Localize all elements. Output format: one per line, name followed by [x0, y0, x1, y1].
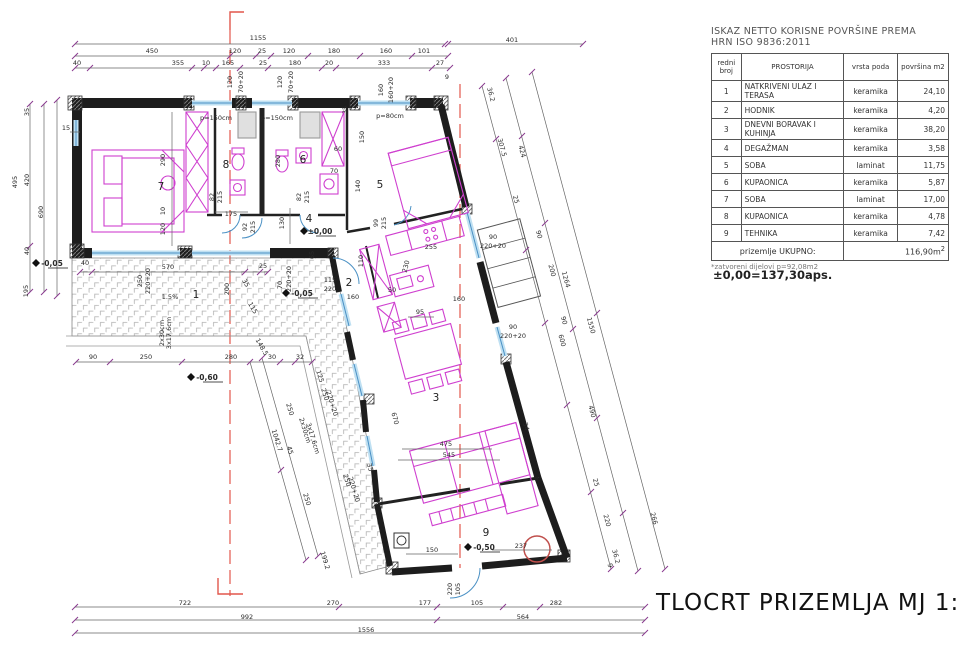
dim-label: 90: [534, 229, 544, 239]
dim-label: 670: [389, 411, 400, 425]
dim-label: 10: [159, 207, 167, 215]
cell-floor: keramika: [844, 102, 898, 119]
room-number: 9: [483, 527, 490, 539]
cell-room: DEGAŽMAN: [741, 140, 844, 157]
cell-number: 4: [712, 140, 742, 157]
dim-label: 600: [556, 333, 567, 347]
dim-label: 160: [377, 84, 385, 96]
dim-label: 70: [330, 167, 338, 175]
cell-number: 6: [712, 174, 742, 191]
bath-room6: [276, 112, 344, 194]
dim-label: 70: [276, 281, 284, 289]
cell-area: 5,87: [897, 174, 948, 191]
dim-label: 70+20: [287, 71, 295, 93]
dim-label: 165: [222, 59, 234, 67]
cell-floor: keramika: [844, 81, 898, 102]
dim-label: 3x17,6cm: [165, 317, 173, 349]
cell-area: 3,58: [897, 140, 948, 157]
bath-room8: [230, 112, 256, 195]
dim-label: 199.2: [318, 550, 331, 570]
cell-number: 2: [712, 102, 742, 119]
dim-label: 160: [380, 47, 392, 55]
dim-label: 250: [136, 275, 144, 287]
dim-label: 250: [284, 402, 295, 416]
dim-label: 450: [146, 47, 158, 55]
dim-label: 475: [440, 440, 452, 448]
dim-label: 90: [89, 353, 97, 361]
cell-floor: keramika: [844, 225, 898, 242]
dim-label: 150: [358, 131, 366, 143]
dim-label: 195: [22, 285, 30, 297]
cell-number: 3: [712, 119, 742, 140]
terrace: [66, 258, 390, 578]
cell-area: 11,75: [897, 157, 948, 174]
cell-room: HODNIK: [741, 102, 844, 119]
dim-label: 280: [225, 353, 237, 361]
cell-area: 4,78: [897, 208, 948, 225]
level-marker-icon: [464, 543, 472, 551]
cell-floor: laminat: [844, 191, 898, 208]
dim-label: 40: [23, 247, 31, 255]
dim-label: 120: [283, 47, 295, 55]
cell-area: 7,42: [897, 225, 948, 242]
dim-label: 180: [289, 59, 301, 67]
dim-label: 105: [454, 583, 462, 595]
dim-label: 120: [276, 76, 284, 88]
cell-floor: keramika: [844, 208, 898, 225]
dim-label: 1155: [250, 34, 267, 42]
room-number: 6: [300, 154, 307, 166]
dim-label: 1.5%: [162, 293, 179, 301]
level-marker-icon: [32, 259, 40, 267]
cell-room: SOBA: [741, 191, 844, 208]
dim-label: 90: [489, 233, 497, 241]
total-value: 116,90m2: [844, 242, 949, 261]
dim-label: 333: [378, 59, 390, 67]
cell-floor: laminat: [844, 157, 898, 174]
drawing-title: TLOCRT PRIZEMLJA MJ 1:100: [656, 590, 960, 616]
col-header-room: PROSTORIJA: [741, 54, 844, 81]
dim-label: 255: [425, 243, 437, 251]
dim-label: 120: [226, 76, 234, 88]
axis-bracket-top: [230, 12, 244, 30]
dim-label: 282: [550, 599, 562, 607]
dim-label: 220: [446, 583, 454, 595]
room-number: 4: [306, 213, 313, 225]
dim-label: 420: [23, 174, 31, 186]
dim-label: 10: [202, 59, 210, 67]
table-row: 1NATKRIVENI ULAZ I TERASAkeramika24,10: [712, 81, 949, 102]
dim-label: 690: [37, 206, 45, 218]
cell-room: DNEVNI BORAVAK I KUHINJA: [741, 119, 844, 140]
level-note: ±0,00=137,30aps.: [713, 268, 832, 282]
area-table: redni broj PROSTORIJA vrsta poda površin…: [711, 53, 949, 261]
dim-label: 25: [259, 262, 267, 270]
sofa: [410, 423, 539, 535]
level-marker-icon: [187, 373, 195, 381]
dim-label: 82: [208, 193, 216, 201]
dim-label: 215: [380, 217, 388, 229]
dim-label: 40: [81, 259, 89, 267]
room-number: 2: [346, 277, 353, 289]
dim-label: 25: [258, 47, 266, 55]
table-row: 2HODNIKkeramika4,20: [712, 102, 949, 119]
cell-room: TEHNIKA: [741, 225, 844, 242]
cell-room: KUPAONICA: [741, 174, 844, 191]
dim-label: 40: [73, 59, 81, 67]
cell-area: 24,10: [897, 81, 948, 102]
window-label: p=150cm: [200, 114, 232, 122]
dim-label: 95: [416, 308, 424, 316]
room-number: 5: [377, 179, 384, 191]
cell-area: 4,20: [897, 102, 948, 119]
dim-label: 177: [419, 599, 431, 607]
dim-label: 175: [225, 210, 237, 218]
table-row: 8KUPAONICAkeramika4,78: [712, 208, 949, 225]
dim-label: 270: [327, 599, 339, 607]
dim-label: 120: [229, 47, 241, 55]
dim-label: 722: [179, 599, 191, 607]
dim-label: 160+20: [387, 77, 395, 103]
cell-number: 8: [712, 208, 742, 225]
cell-number: 1: [712, 81, 742, 102]
dim-label: 101: [418, 47, 430, 55]
dim-label: 35: [23, 108, 31, 116]
drawing-sheet: 1155401450120251201801601014035510165251…: [0, 0, 960, 659]
dim-label: 90: [559, 315, 569, 325]
dim-label: 564: [517, 613, 529, 621]
room-number: 8: [223, 159, 230, 171]
dim-label: 355: [172, 59, 184, 67]
dim-label: 200: [223, 283, 231, 295]
dim-label: 545: [443, 451, 455, 459]
dim-label: 160: [347, 293, 359, 301]
cell-room: NATKRIVENI ULAZ I TERASA: [741, 81, 844, 102]
dim-label: 70+20: [237, 71, 245, 93]
level-label: -0,05: [41, 259, 63, 268]
bed-room5: [388, 137, 468, 228]
table-title-line1: ISKAZ NETTO KORISNE POVRŠINE PREMA: [711, 26, 953, 37]
table-row: 4DEGAŽMANkeramika3,58: [712, 140, 949, 157]
cell-floor: keramika: [844, 140, 898, 157]
dim-label: 30: [268, 353, 276, 361]
dim-label: 82: [295, 193, 303, 201]
dim-label: 215: [216, 191, 224, 203]
dim-label: 99: [372, 219, 380, 227]
window-label: p=80cm: [376, 112, 404, 120]
dim-label: 36.2: [485, 86, 496, 102]
dim-label: 570: [162, 263, 174, 271]
dim-label: 27: [436, 59, 444, 67]
dim-label: 490: [586, 404, 597, 418]
dim-label: 220+20: [500, 332, 526, 340]
dim-label: 200: [546, 263, 557, 277]
dim-label: 280: [274, 155, 282, 167]
dim-label: 20: [325, 59, 333, 67]
cell-number: 7: [712, 191, 742, 208]
table-title-line2: HRN ISO 9836:2011: [711, 37, 953, 48]
dim-label: 45: [285, 445, 295, 455]
bed-room7: [92, 150, 184, 232]
level-label: -0,50: [473, 543, 495, 552]
kitchen-island: [390, 265, 434, 297]
total-label: prizemlje UKUPNO:: [712, 242, 844, 261]
dim-label: 50: [388, 286, 396, 294]
dim-label: 25: [259, 59, 267, 67]
dim-label: 15: [62, 124, 70, 132]
dim-label: 140: [354, 180, 362, 192]
area-table-block: ISKAZ NETTO KORISNE POVRŠINE PREMA HRN I…: [711, 26, 953, 271]
dim-label: 220: [601, 513, 612, 527]
walls-left-wing: [72, 98, 443, 258]
col-header-floor: vrsta poda: [844, 54, 898, 81]
dim-label: 60: [334, 145, 342, 153]
room-number: 3: [433, 392, 440, 404]
window-label: p=150cm: [261, 114, 293, 122]
dim-label: 25: [511, 194, 521, 204]
dim-label: 266: [648, 511, 659, 525]
cell-floor: keramika: [844, 119, 898, 140]
table-row: 3DNEVNI BORAVAK I KUHINJAkeramika38,20: [712, 119, 949, 140]
dim-label: 130: [278, 217, 286, 229]
dim-label: 110: [357, 255, 365, 267]
dim-label: 401: [506, 36, 518, 44]
dim-label: 160: [453, 295, 465, 303]
dim-label: 250: [301, 492, 312, 506]
level-label: ±0,00: [308, 227, 333, 236]
cell-number: 9: [712, 225, 742, 242]
cell-area: 38,20: [897, 119, 948, 140]
dim-label: 150: [426, 546, 438, 554]
dim-label: 115: [324, 276, 336, 284]
table-row: 9TEHNIKAkeramika7,42: [712, 225, 949, 242]
total-row: prizemlje UKUPNO: 116,90m2: [712, 242, 949, 261]
dim-label: 105: [471, 599, 483, 607]
dim-label: 180: [328, 47, 340, 55]
dim-label: 35: [341, 106, 349, 114]
dim-label: 90: [509, 323, 517, 331]
dim-label: 9: [445, 73, 449, 81]
dim-label: 92: [241, 223, 249, 231]
dim-label: 1550: [585, 316, 597, 334]
cell-room: SOBA: [741, 157, 844, 174]
room-number: 7: [158, 181, 165, 193]
table-row: 6KUPAONICAkeramika5,87: [712, 174, 949, 191]
dim-label: 237: [515, 542, 527, 550]
dim-label: 215: [303, 191, 311, 203]
table-row: 5SOBAlaminat11,75: [712, 157, 949, 174]
room-number: 1: [193, 289, 200, 301]
dim-label: 215: [249, 221, 257, 233]
dim-label: 25: [591, 477, 601, 487]
level-label: -0,05: [291, 289, 313, 298]
dim-label: 290: [159, 154, 167, 166]
cell-floor: keramika: [844, 174, 898, 191]
dim-label: 230: [401, 259, 412, 273]
dim-label: 495: [11, 176, 19, 188]
dim-label: 32: [296, 353, 304, 361]
dim-label: 65: [308, 251, 316, 259]
dim-label: 1556: [358, 626, 375, 634]
dining-set: [390, 308, 465, 394]
col-header-area: površina m2: [897, 54, 948, 81]
cell-room: KUPAONICA: [741, 208, 844, 225]
cell-number: 5: [712, 157, 742, 174]
dim-label: 992: [241, 613, 253, 621]
col-header-number: redni broj: [712, 54, 742, 81]
cell-area: 17,00: [897, 191, 948, 208]
dim-label: 424: [516, 144, 527, 158]
dim-label: 307.5: [496, 137, 509, 157]
level-label: -0,60: [196, 373, 218, 382]
dim-label: 220+20: [480, 242, 506, 250]
dim-label: 120: [159, 223, 167, 235]
dim-label: 220+20: [144, 268, 152, 294]
table-row: 7SOBAlaminat17,00: [712, 191, 949, 208]
dim-label: 220: [324, 285, 336, 293]
dim-label: 250: [140, 353, 152, 361]
